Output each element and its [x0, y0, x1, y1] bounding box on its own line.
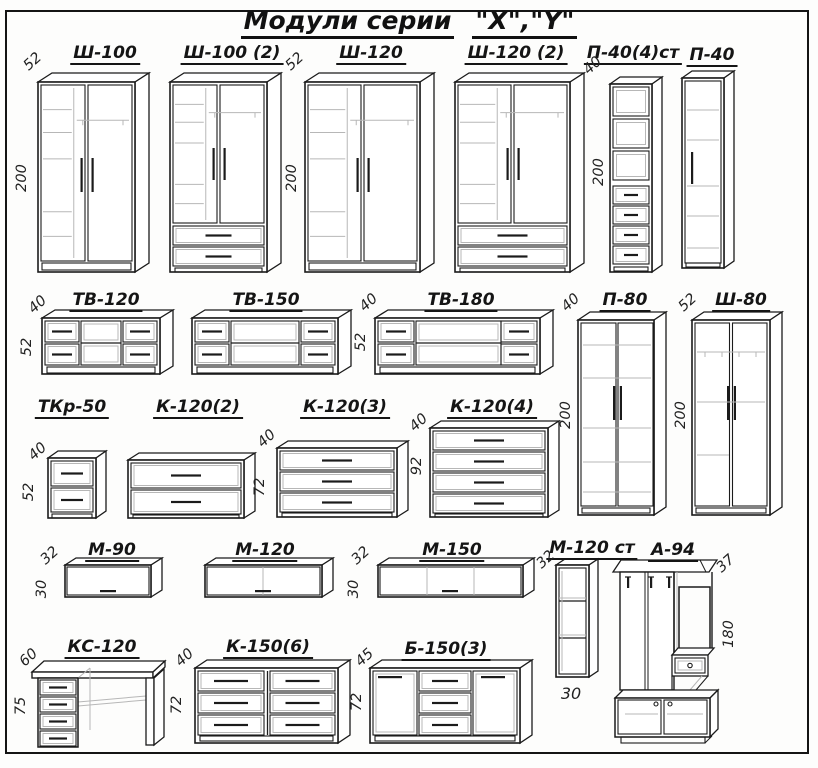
module-label-sh80: Ш-80 [712, 291, 770, 312]
page-title: Модули серии "X","Y" [0, 6, 818, 39]
k120-3-drawing [277, 441, 408, 517]
sh120-drawing [305, 73, 434, 272]
k120-4-height-dim: 92 [410, 457, 425, 475]
m150-height-dim: 30 [347, 580, 362, 598]
p40-4st-height-dim: 200 [592, 158, 607, 186]
k120-2-drawing [128, 453, 255, 518]
module-label-sh120: Ш-120 [336, 44, 406, 65]
module-label-k120-2: К-120(2) [153, 398, 243, 419]
tkr50-height-dim: 52 [22, 483, 37, 501]
module-label-p80: П-80 [600, 291, 651, 312]
tv150-drawing [192, 310, 351, 374]
sh80-height-dim: 200 [674, 401, 689, 429]
ks120-height-dim: 75 [14, 697, 29, 715]
p80-drawing [578, 312, 666, 515]
module-label-tv120: ТВ-120 [69, 291, 142, 312]
b150-3-height-dim: 72 [350, 693, 365, 711]
module-label-tkr50: ТКр-50 [35, 398, 109, 419]
module-label-b150-3: Б-150(3) [402, 640, 491, 661]
module-label-m150: М-150 [419, 541, 484, 562]
sh120-height-dim: 200 [285, 164, 300, 192]
tv120-drawing [42, 310, 173, 374]
module-label-tv150: ТВ-150 [229, 291, 302, 312]
m90-height-dim: 30 [35, 580, 50, 598]
m120st-drawing [556, 559, 598, 677]
m120st-width-dim: 30 [561, 686, 581, 702]
tkr50-drawing [48, 451, 106, 518]
title-series-text: Модули серии [241, 6, 455, 39]
k150-6-height-dim: 72 [170, 696, 185, 714]
k120-4-drawing [430, 421, 559, 517]
catalog-sheet: Модули серии "X","Y" Ш-100 Ш-100 (2) Ш-1… [0, 0, 818, 768]
module-label-m120: М-120 [232, 541, 297, 562]
module-label-m90: М-90 [85, 541, 139, 562]
p80-height-dim: 200 [559, 401, 574, 429]
module-label-tv180: ТВ-180 [424, 291, 497, 312]
tv180-drawing [375, 310, 553, 374]
title-series-codes: "X","Y" [472, 6, 577, 39]
sh100-drawing [38, 73, 149, 272]
m90-drawing [65, 558, 162, 597]
ks120-drawing [32, 661, 165, 747]
p40-drawing [682, 71, 734, 268]
p40-4st-drawing [610, 77, 662, 272]
module-label-sh100-2: Ш-100 (2) [181, 44, 284, 65]
a94-drawing [613, 560, 718, 743]
sh80-drawing [692, 312, 782, 515]
tv120-height-dim: 52 [20, 338, 35, 356]
module-label-a94: А-94 [648, 541, 698, 562]
module-label-k120-3: К-120(3) [300, 398, 390, 419]
module-label-m120st: М-120 ст [546, 539, 637, 560]
tv180-height-dim: 52 [354, 333, 369, 351]
module-label-sh100: Ш-100 [70, 44, 140, 65]
module-label-sh120-2: Ш-120 (2) [465, 44, 568, 65]
m150-drawing [378, 558, 534, 597]
m120-drawing [205, 558, 333, 597]
a94-height-dim: 180 [722, 620, 737, 648]
k120-3-height-dim: 72 [253, 478, 268, 496]
sh100-2-drawing [170, 73, 281, 272]
module-label-p40: П-40 [687, 46, 738, 67]
b150-3-drawing [370, 660, 532, 743]
module-label-ks120: КС-120 [65, 638, 140, 659]
sh100-height-dim: 200 [15, 164, 30, 192]
k150-6-drawing [195, 660, 350, 743]
sh120-2-drawing [455, 73, 584, 272]
module-label-k120-4: К-120(4) [447, 398, 537, 419]
module-label-k150-6: К-150(6) [223, 638, 313, 659]
